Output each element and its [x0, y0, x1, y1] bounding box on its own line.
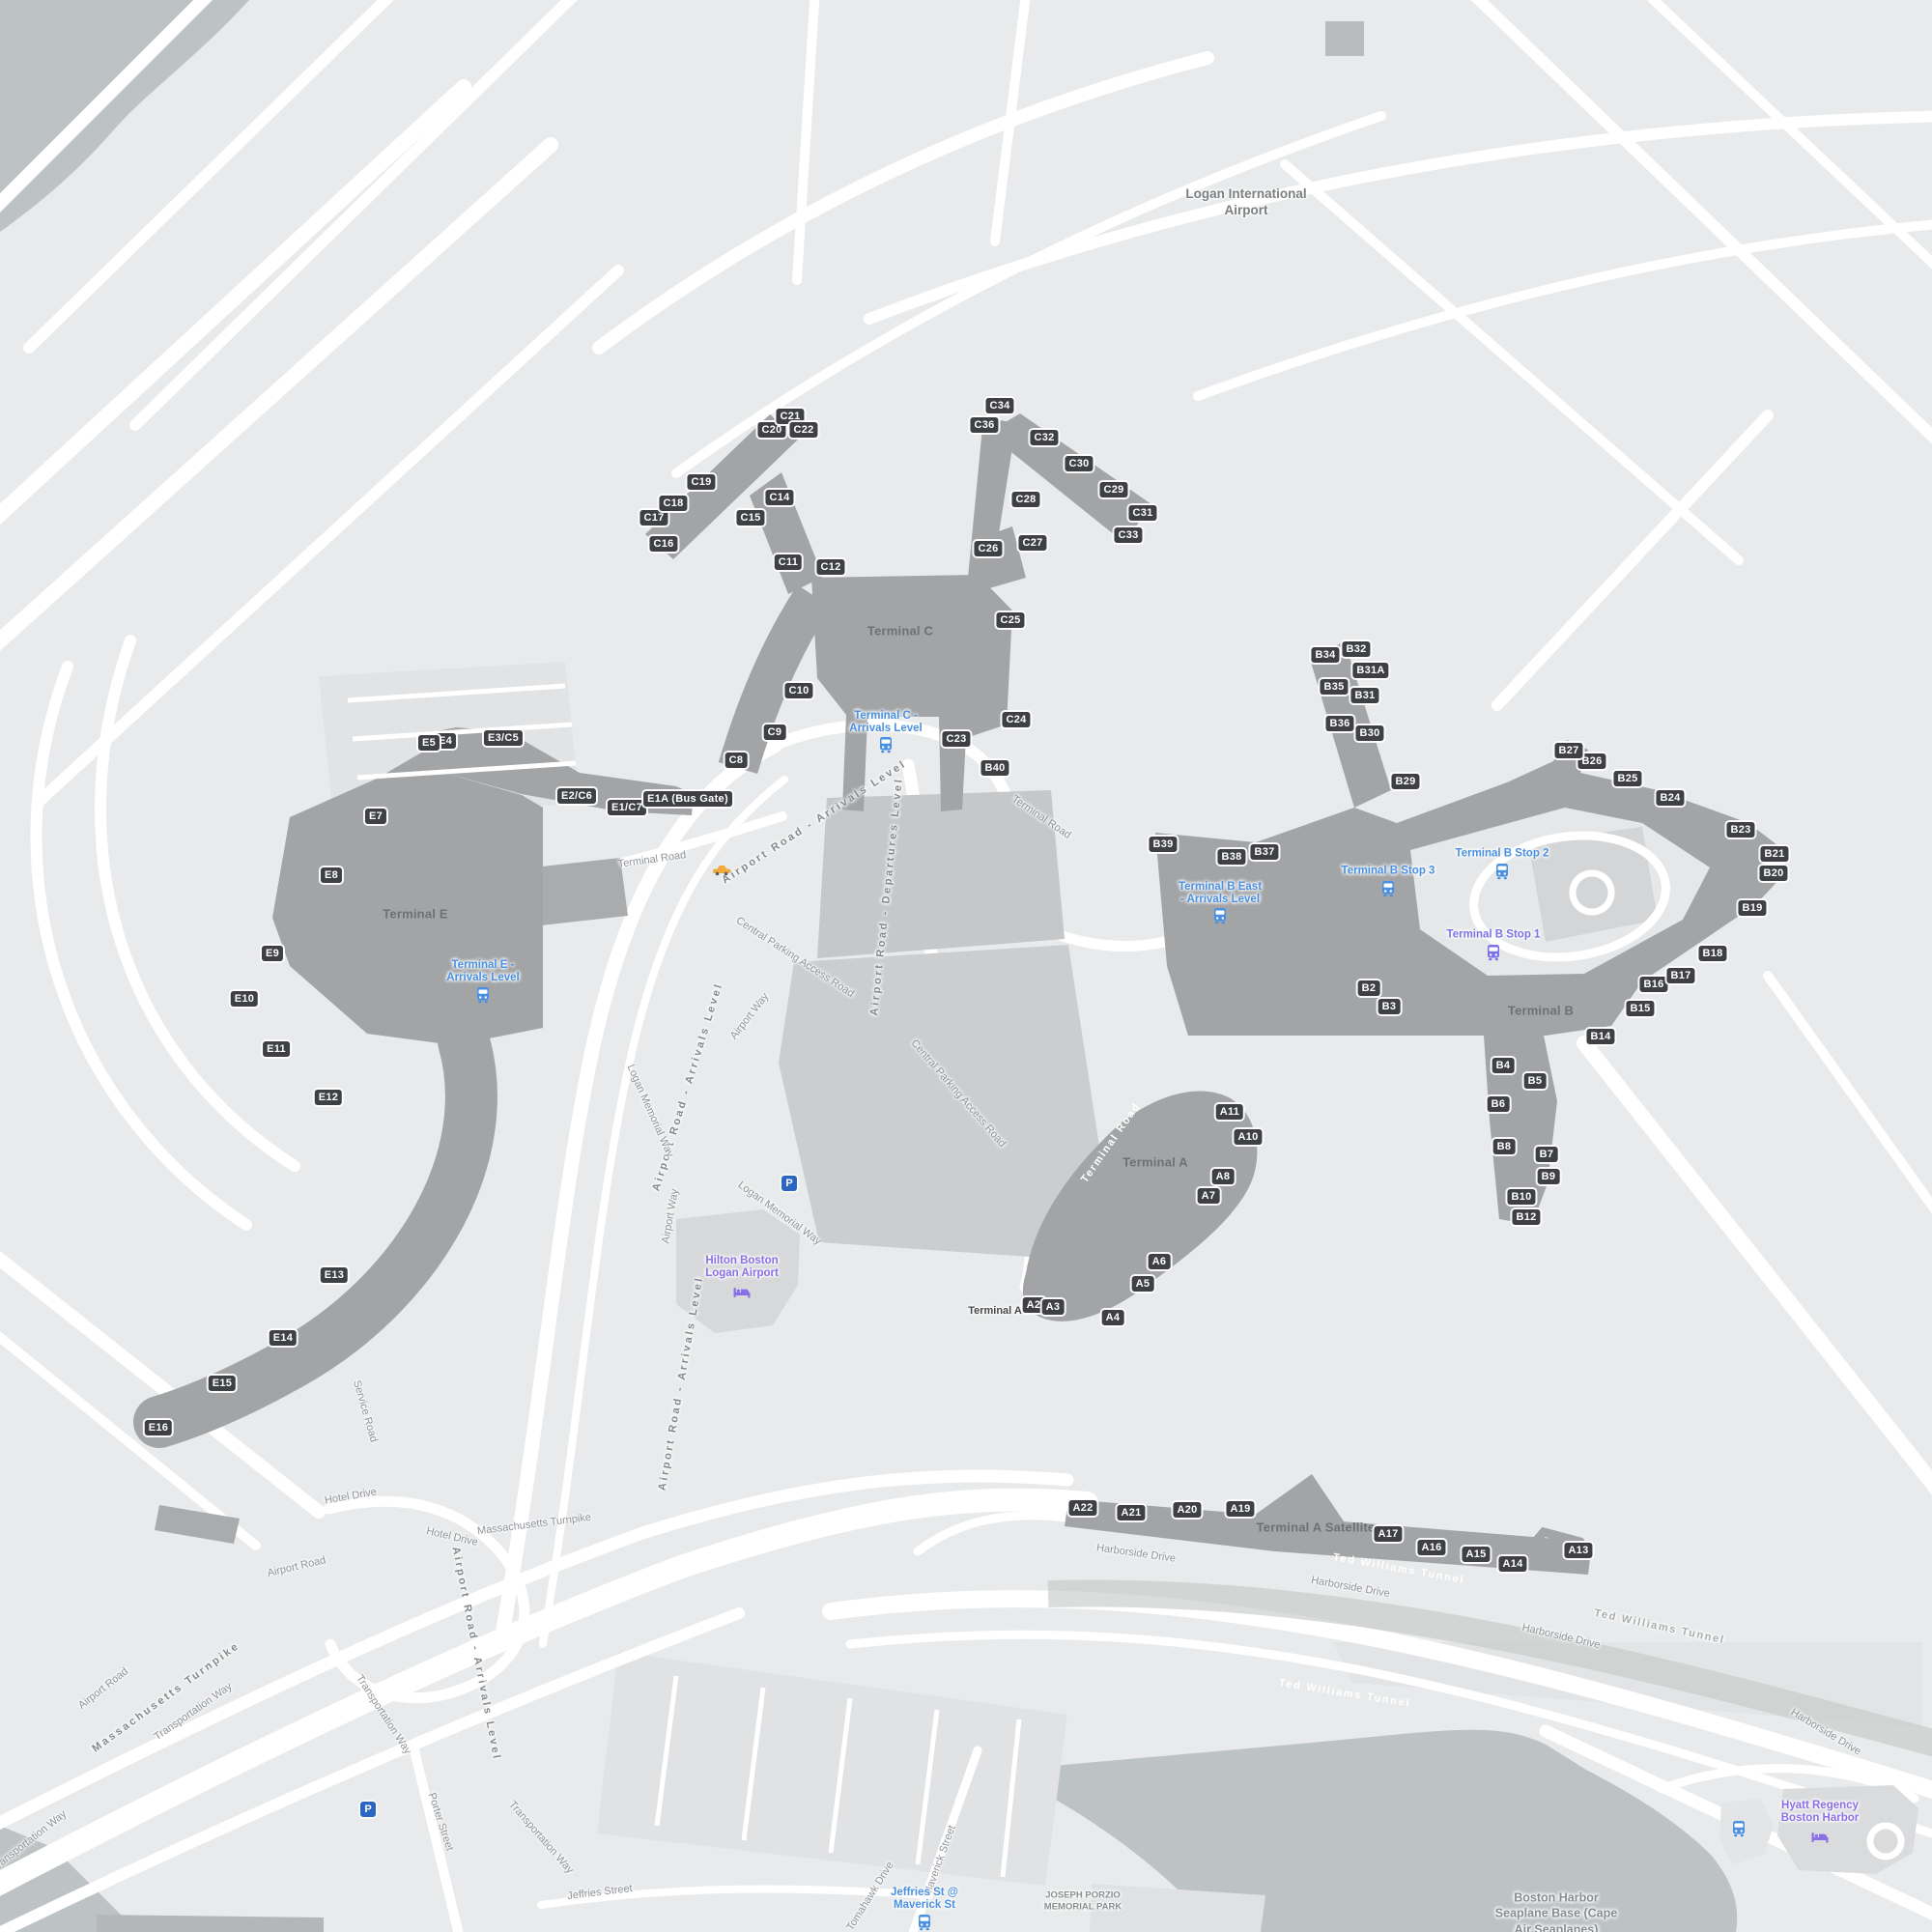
map-base-layer	[0, 0, 1932, 1932]
terminal-a-satellite-peak	[1217, 1474, 1364, 1551]
terminal-c-pier-northeast	[987, 413, 1151, 543]
hilton-building	[676, 1209, 800, 1333]
harbor-dock	[1719, 1799, 1774, 1864]
terminal-c-connector	[750, 472, 823, 594]
central-garage-north	[817, 790, 1065, 958]
terminal-e-main	[272, 752, 543, 1045]
airport-map-canvas[interactable]: Logan InternationalAirportTerminal CTerm…	[0, 0, 1932, 1932]
water-northwest	[0, 0, 249, 232]
terminal-b-south-pier	[1484, 1036, 1557, 1225]
terminal-b-north-pier	[1310, 641, 1391, 808]
